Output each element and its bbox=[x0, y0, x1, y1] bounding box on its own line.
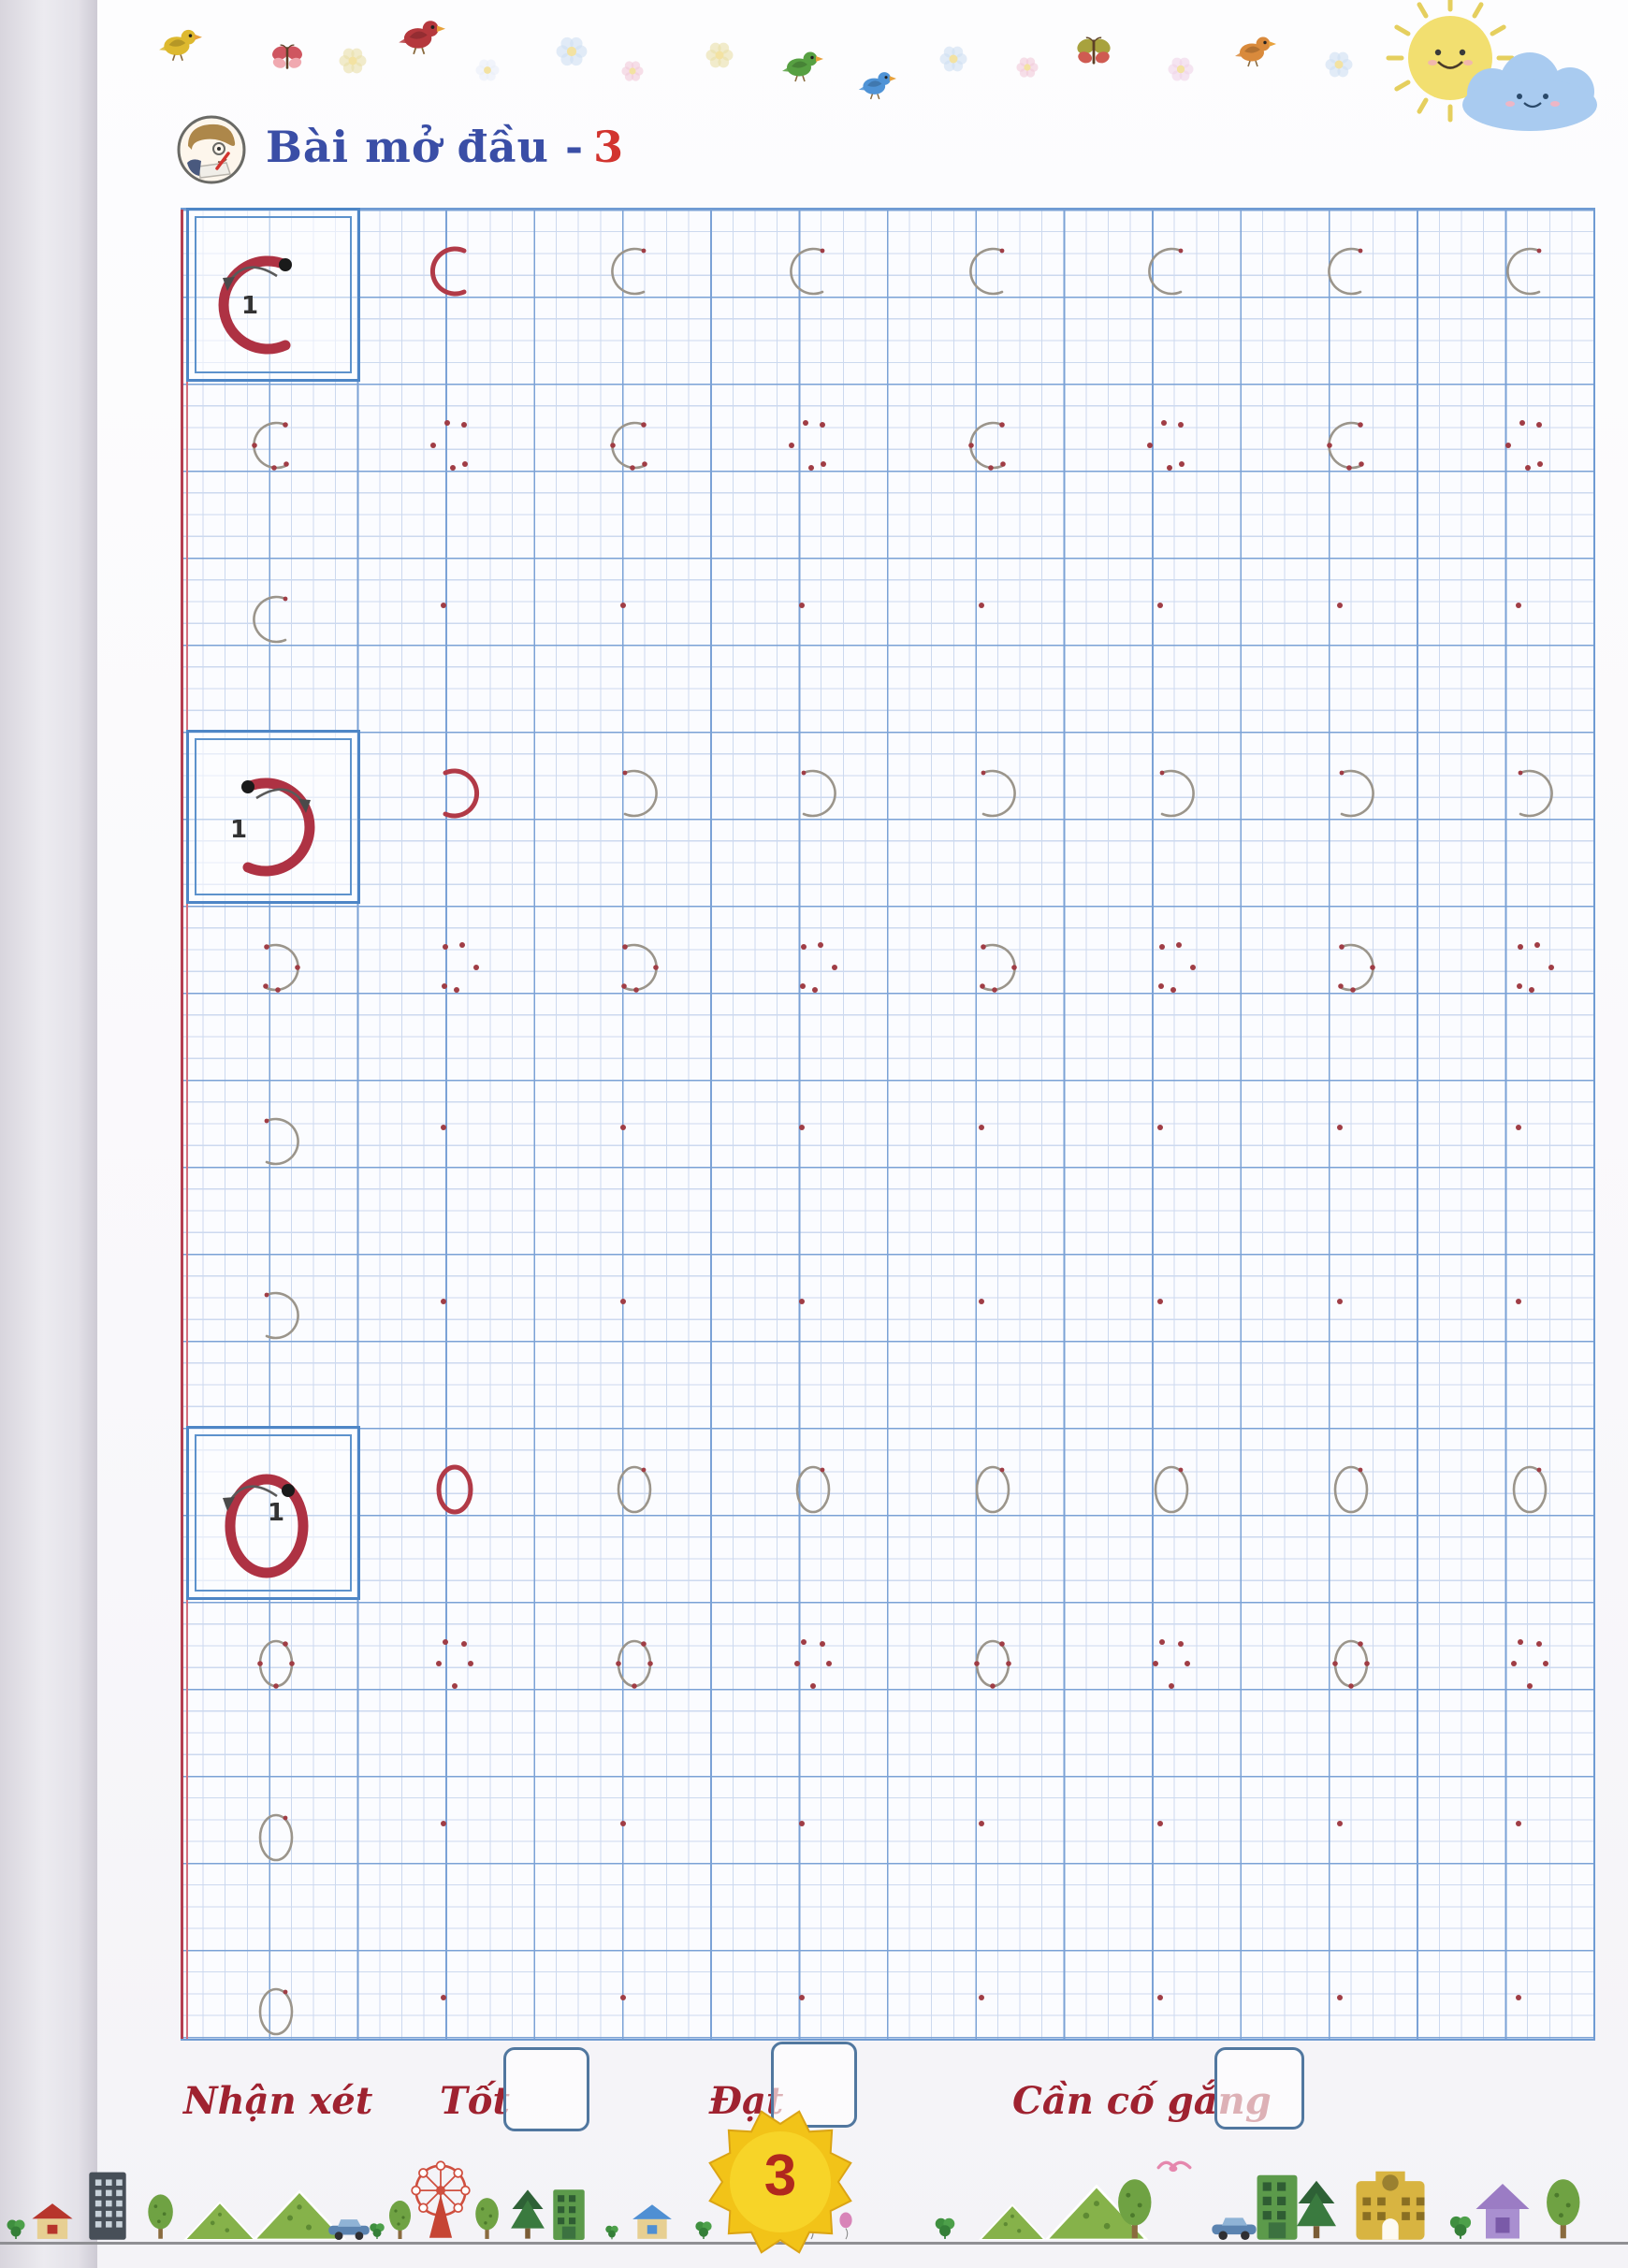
practice-letter-Ɔ-gray bbox=[608, 764, 661, 821]
bird-green-icon bbox=[780, 47, 823, 86]
practice-start-dot bbox=[608, 1287, 661, 1343]
car-icon bbox=[327, 2217, 371, 2244]
flower-icon bbox=[621, 60, 644, 86]
practice-dot-cluster-O bbox=[429, 1635, 481, 1691]
practice-start-dot bbox=[608, 590, 661, 647]
practice-start-dot bbox=[429, 1287, 481, 1343]
practice-letter-Ɔ-gray bbox=[1325, 764, 1377, 821]
practice-letter-O-red bbox=[429, 1461, 481, 1517]
practice-letter-Ɔ-gray bbox=[250, 1112, 302, 1169]
clover-icon bbox=[6, 2217, 26, 2244]
workbook-page: Bài mở đầu -3 1 1 1 Nhận xét Tốt Đạt Cần… bbox=[0, 0, 1628, 2268]
practice-start-dot bbox=[429, 1112, 481, 1169]
red-margin-line-inner bbox=[186, 210, 188, 2039]
flower-icon bbox=[339, 47, 367, 79]
practice-dot-cluster-C bbox=[787, 416, 839, 472]
practice-letter-Ɔ-gray bbox=[250, 1287, 302, 1343]
practice-start-dot bbox=[787, 1287, 839, 1343]
practice-dot-cluster-Ɔ bbox=[787, 938, 839, 995]
bird-orange-icon bbox=[1233, 32, 1276, 71]
handwriting-practice-grid: 1 1 1 bbox=[181, 208, 1595, 2041]
house-purple-icon bbox=[1475, 2181, 1531, 2244]
practice-letter-Ɔ-gray bbox=[1145, 764, 1198, 821]
building-green-icon bbox=[552, 2188, 586, 2244]
practice-letter-Ɔ-red bbox=[429, 764, 481, 821]
practice-dot-cluster-Ɔ bbox=[1504, 938, 1556, 995]
practice-dot-cluster-C bbox=[429, 416, 481, 472]
practice-dot-cluster-O bbox=[1504, 1635, 1556, 1691]
butterfly-olive-icon bbox=[1074, 36, 1113, 72]
practice-letter-O-gray bbox=[1504, 1461, 1556, 1517]
practice-letter-C-gray bbox=[787, 242, 839, 298]
practice-dot-cluster-C bbox=[1504, 416, 1556, 472]
building-yellow-icon bbox=[1353, 2168, 1428, 2244]
page-title: Bài mở đầu -3 bbox=[266, 122, 624, 172]
practice-start-dot bbox=[429, 1809, 481, 1865]
svg-text:1: 1 bbox=[230, 816, 247, 844]
practice-start-dot bbox=[1325, 1287, 1377, 1343]
practice-start-dot bbox=[967, 1809, 1019, 1865]
practice-letter-C-trace bbox=[1325, 416, 1377, 472]
flower-icon bbox=[1016, 56, 1039, 82]
practice-letter-C-gray bbox=[1504, 242, 1556, 298]
practice-start-dot bbox=[608, 1112, 661, 1169]
bird-blue-icon bbox=[857, 67, 896, 104]
practice-start-dot bbox=[1504, 590, 1556, 647]
practice-letter-C-gray bbox=[250, 590, 302, 647]
flower-icon bbox=[475, 58, 500, 86]
tree-icon bbox=[387, 2199, 412, 2244]
practice-letter-O-gray bbox=[1325, 1461, 1377, 1517]
practice-letter-C-trace bbox=[250, 416, 302, 472]
clover-icon bbox=[1448, 2214, 1473, 2244]
writing-child-avatar-icon bbox=[176, 114, 247, 189]
practice-letter-Ɔ-trace bbox=[250, 938, 302, 995]
practice-letter-C-trace bbox=[967, 416, 1019, 472]
practice-letter-O-trace bbox=[250, 1635, 302, 1691]
bird-yellow-icon bbox=[157, 24, 202, 65]
sun-cloud-illustration bbox=[1338, 0, 1628, 140]
practice-start-dot bbox=[608, 1809, 661, 1865]
practice-start-dot bbox=[1325, 1809, 1377, 1865]
practice-letter-O-trace bbox=[1325, 1635, 1377, 1691]
evaluation-label: Nhận xét bbox=[183, 2079, 372, 2123]
practice-start-dot bbox=[1325, 1112, 1377, 1169]
practice-letter-Ɔ-trace bbox=[608, 938, 661, 995]
practice-start-dot bbox=[1504, 1983, 1556, 2039]
practice-start-dot bbox=[787, 1112, 839, 1169]
demo-box-Ɔ: 1 bbox=[186, 730, 360, 904]
book-gutter-edge bbox=[0, 0, 97, 2268]
pine-icon bbox=[511, 2188, 545, 2244]
ferris-wheel-icon bbox=[410, 2159, 472, 2244]
lesson-number: 3 bbox=[584, 122, 624, 172]
lesson-title-text: Bài mở đầu - bbox=[266, 122, 584, 172]
clover-icon bbox=[934, 2216, 956, 2244]
practice-letter-O-gray bbox=[250, 1809, 302, 1865]
practice-letter-O-gray bbox=[1145, 1461, 1198, 1517]
practice-letter-Ɔ-trace bbox=[967, 938, 1019, 995]
practice-start-dot bbox=[1325, 590, 1377, 647]
tree-icon bbox=[1544, 2176, 1581, 2244]
practice-start-dot bbox=[1145, 1983, 1198, 2039]
practice-letter-C-gray bbox=[967, 242, 1019, 298]
practice-dot-cluster-Ɔ bbox=[429, 938, 481, 995]
house-blue-icon bbox=[631, 2203, 674, 2244]
page-number: 3 bbox=[704, 2143, 857, 2209]
svg-text:1: 1 bbox=[241, 292, 258, 320]
practice-letter-Ɔ-gray bbox=[787, 764, 839, 821]
demo-box-C: 1 bbox=[186, 208, 360, 382]
bird-pink-icon bbox=[1156, 2155, 1192, 2182]
practice-letter-O-gray bbox=[250, 1983, 302, 2039]
svg-text:1: 1 bbox=[268, 1499, 284, 1527]
practice-start-dot bbox=[1145, 1809, 1198, 1865]
practice-start-dot bbox=[967, 1983, 1019, 2039]
practice-letter-Ɔ-gray bbox=[967, 764, 1019, 821]
practice-letter-C-gray bbox=[608, 242, 661, 298]
flower-icon bbox=[556, 36, 588, 71]
practice-letter-O-gray bbox=[967, 1461, 1019, 1517]
practice-letter-C-gray bbox=[1145, 242, 1198, 298]
practice-letter-O-gray bbox=[608, 1461, 661, 1517]
practice-start-dot bbox=[967, 590, 1019, 647]
flower-icon bbox=[705, 41, 734, 73]
practice-start-dot bbox=[967, 1287, 1019, 1343]
bird-red-icon bbox=[397, 15, 445, 59]
practice-start-dot bbox=[429, 1983, 481, 2039]
practice-letter-Ɔ-trace bbox=[1325, 938, 1377, 995]
practice-start-dot bbox=[787, 1809, 839, 1865]
practice-dot-cluster-Ɔ bbox=[1145, 938, 1198, 995]
tree-icon bbox=[1115, 2176, 1153, 2244]
evaluation-option-good: Tốt bbox=[440, 2079, 510, 2123]
demo-box-O: 1 bbox=[186, 1426, 360, 1600]
practice-letter-C-trace bbox=[608, 416, 661, 472]
tree-icon bbox=[146, 2192, 174, 2244]
practice-letter-Ɔ-gray bbox=[1504, 764, 1556, 821]
mountain-icon bbox=[183, 2199, 256, 2244]
practice-start-dot bbox=[787, 590, 839, 647]
practice-start-dot bbox=[1504, 1112, 1556, 1169]
practice-start-dot bbox=[1325, 1983, 1377, 2039]
car-icon bbox=[1211, 2216, 1257, 2244]
pine-icon bbox=[1297, 2179, 1336, 2244]
practice-letter-O-trace bbox=[967, 1635, 1019, 1691]
practice-start-dot bbox=[1504, 1287, 1556, 1343]
practice-start-dot bbox=[1145, 1287, 1198, 1343]
practice-dot-cluster-C bbox=[1145, 416, 1198, 472]
practice-start-dot bbox=[967, 1112, 1019, 1169]
practice-start-dot bbox=[429, 590, 481, 647]
practice-start-dot bbox=[1145, 590, 1198, 647]
butterfly-red-icon bbox=[269, 43, 305, 77]
building-green-icon bbox=[1256, 2173, 1299, 2244]
practice-letter-O-trace bbox=[608, 1635, 661, 1691]
building-dark-icon bbox=[88, 2171, 127, 2244]
checkbox-tot[interactable] bbox=[503, 2047, 589, 2131]
red-margin-line bbox=[181, 210, 183, 2039]
clover-icon bbox=[604, 2224, 619, 2244]
house-red-icon bbox=[30, 2202, 75, 2244]
flower-icon bbox=[1168, 56, 1194, 86]
practice-start-dot bbox=[787, 1983, 839, 2039]
flower-icon bbox=[939, 45, 967, 77]
practice-letter-C-gray bbox=[1325, 242, 1377, 298]
mountain-icon bbox=[979, 2202, 1046, 2244]
practice-start-dot bbox=[608, 1983, 661, 2039]
practice-start-dot bbox=[1504, 1809, 1556, 1865]
tree-icon bbox=[473, 2196, 500, 2244]
practice-letter-C-red bbox=[429, 242, 481, 298]
checkbox-can-co-gang[interactable] bbox=[1214, 2047, 1304, 2130]
practice-dot-cluster-O bbox=[1145, 1635, 1198, 1691]
practice-start-dot bbox=[1145, 1112, 1198, 1169]
clover-icon bbox=[369, 2221, 385, 2244]
practice-letter-O-gray bbox=[787, 1461, 839, 1517]
practice-dot-cluster-O bbox=[787, 1635, 839, 1691]
